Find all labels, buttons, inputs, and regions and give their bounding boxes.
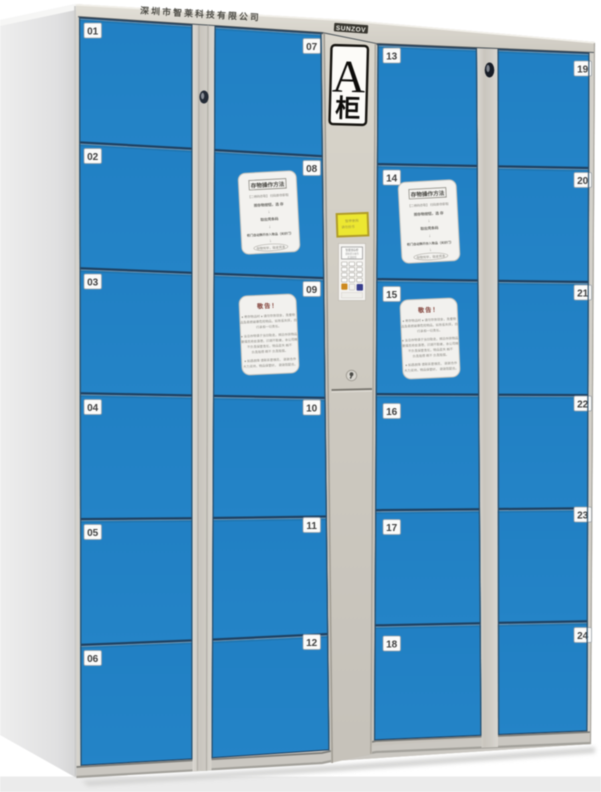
svg-text:取出凭条码: 取出凭条码 <box>420 225 439 231</box>
svg-text:20: 20 <box>577 176 589 187</box>
svg-text:↓: ↓ <box>269 238 272 243</box>
svg-text:21: 21 <box>577 289 589 300</box>
svg-text:敬告！: 敬告！ <box>256 302 279 311</box>
svg-text:柜: 柜 <box>335 95 361 124</box>
svg-text:请勿投币: 请勿投币 <box>341 224 355 229</box>
svg-text:敬告！: 敬告！ <box>417 306 440 315</box>
svg-text:↓: ↓ <box>428 233 431 238</box>
svg-text:02: 02 <box>87 152 99 163</box>
svg-text:16: 16 <box>386 407 398 418</box>
svg-text:08: 08 <box>306 164 318 175</box>
svg-text:↓: ↓ <box>268 209 271 214</box>
svg-text:智能寄存柜: 智能寄存柜 <box>346 248 359 252</box>
svg-text:05: 05 <box>87 528 99 539</box>
svg-text:A: A <box>331 51 366 103</box>
svg-text:↓: ↓ <box>428 218 431 223</box>
svg-text:18: 18 <box>386 640 398 651</box>
svg-text:17: 17 <box>386 523 398 534</box>
svg-text:↓: ↓ <box>268 224 271 229</box>
svg-text:暂停使用: 暂停使用 <box>345 218 359 223</box>
svg-text:14: 14 <box>386 174 398 185</box>
svg-text:03: 03 <box>87 278 99 289</box>
svg-text:12: 12 <box>306 638 318 649</box>
svg-text:↓: ↓ <box>429 247 432 252</box>
svg-text:01: 01 <box>87 27 99 38</box>
svg-text:10: 10 <box>306 404 318 415</box>
svg-text:07: 07 <box>306 42 318 53</box>
svg-text:13: 13 <box>386 52 398 63</box>
svg-text:22: 22 <box>577 400 589 411</box>
svg-text:15: 15 <box>386 290 398 301</box>
svg-text:11: 11 <box>306 521 317 532</box>
svg-text:19: 19 <box>577 65 589 76</box>
svg-text:取出凭条码: 取出凭条码 <box>260 216 279 222</box>
svg-text:09: 09 <box>306 285 318 296</box>
svg-text:06: 06 <box>87 654 99 665</box>
svg-text:04: 04 <box>87 403 99 414</box>
